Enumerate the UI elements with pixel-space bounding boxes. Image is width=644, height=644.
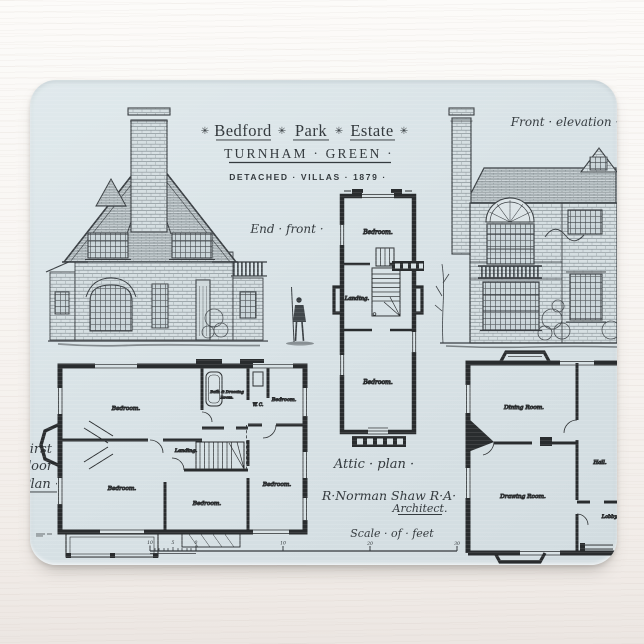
right-upper-window [568,210,602,234]
scale-main-ticks [150,546,457,552]
attic-landing-label: Landing. [344,296,370,302]
figure-staff [292,287,295,342]
scale-tick-30: 30 [454,541,460,547]
title-word-bedford: Bedford [214,121,272,140]
right-lower-window [570,274,602,320]
detached-villas-line: DETACHED · VILLAS · 1879 · [229,172,387,182]
dining-fireplace [540,437,552,446]
ff-bedroom-ne-label: Bedroom. [271,397,297,403]
ff-bedroom-e-label: Bedroom. [262,482,292,488]
center-porch [182,533,240,547]
scale-tick-5: 5 [172,540,175,546]
artwork-svg: ✳ Bedford ✳ Park ✳ Estate ✳ TURNHAM · GR… [30,80,617,565]
first-floor-plan: Bedroom. Bath & Dressing Room. W. C. Bed… [36,359,308,558]
gf-lobby-label: Lobby. [601,514,617,520]
title-word-park: Park [295,121,327,140]
lower-window [483,282,539,330]
chimney-shaft [131,120,167,232]
partitions [494,363,617,553]
ff-bedroom-sw-label: Bedroom. [107,486,137,492]
front-elevation-label: Front · elevation · [510,115,617,129]
outer-walls [468,363,617,553]
attic-bedroom-bottom-label: Bedroom. [362,379,393,386]
window-openings [465,360,594,557]
title-block: ✳ Bedford ✳ Park ✳ Estate ✳ TURNHAM · GR… [201,121,408,182]
balustrade [233,262,265,276]
figure-shadow [286,342,314,346]
first-floor-word-3: Plan · [30,477,59,492]
dormer-block-left [352,189,363,195]
gf-dining-label: Dining Room. [503,405,544,411]
title-ornament-4: ✳ [400,126,408,137]
architect-title: Architect. [392,502,448,515]
splayed-window-lower [84,447,113,469]
first-floor-plan-caption: First floor Plan · [30,442,60,492]
figure-body [293,305,306,322]
figure-legs [296,322,304,341]
scale-tick-10b: 10 [280,541,286,547]
attic-plan: Bedroom. Landing. Bedroom. [334,189,424,447]
sapling [435,264,449,343]
ff-bedroom-s-label: Bedroom. [192,501,222,507]
end-front-label: End · front · [249,222,323,236]
stair-gallery [392,261,424,271]
architect-name: R·Norman Shaw R·A· [321,488,456,503]
ground-floor-plan: Dining Room. Hall. Drawing Room. Lobby. [465,352,617,562]
scale-of-feet-label: Scale · of · feet [350,527,434,540]
porch-window [240,292,256,318]
chimney-cap [128,108,170,115]
arched-window [90,285,132,331]
title-ornament-3: ✳ [335,126,343,137]
top-window-opening [362,193,394,199]
front-elevation [435,108,617,347]
corner-fireplace [468,418,494,452]
gable-window [590,157,607,170]
mousepad: ✳ Bedford ✳ Park ✳ Estate ✳ TURNHAM · GR… [30,80,617,565]
chimney-shaft [452,118,471,254]
figure-with-staff [286,287,314,346]
title-ornament-2: ✳ [278,126,286,137]
ground-shading [446,346,617,347]
gf-drawing-label: Drawing Room. [499,494,546,500]
figure-head [296,297,301,302]
dormer-block-1 [196,359,222,366]
upper-window-right [172,233,212,258]
ff-wc-label: W. C. [253,402,264,407]
ff-landing-label: Landing. [174,448,198,454]
top-bay-glazing [507,354,543,357]
ff-bath-label-1: Bath & Dressing [209,389,244,394]
subtitle-turnham-green: TURNHAM · GREEN · [224,146,394,161]
gf-hall-label: Hall. [592,460,607,466]
scale-tick-20: 20 [366,541,373,547]
title-word-estate: Estate [350,121,393,140]
end-front-elevation [46,108,268,346]
scale-tick-0: 0 [195,540,198,546]
ff-bath-label-2: Room. [220,395,234,400]
upper-window [487,224,534,264]
staircase [196,425,247,469]
veranda [66,534,158,558]
upper-window-left [88,233,128,258]
ff-bedroom-nw-label: Bedroom. [111,406,141,412]
printers-mark [36,534,52,536]
scale-tick-10a: 10 [147,540,153,546]
roof-band [466,168,616,203]
wing-window [55,292,69,314]
staircase [372,248,400,316]
attic-plan-label: Attic · plan · [333,457,414,472]
attic-bedroom-top-label: Bedroom. [362,229,393,236]
wc-fixture [253,372,263,386]
chimney-cap [449,108,474,115]
ground-shading [58,344,260,346]
narrow-window [152,284,168,328]
title-ornament-1: ✳ [201,126,209,137]
balcony [480,266,540,278]
